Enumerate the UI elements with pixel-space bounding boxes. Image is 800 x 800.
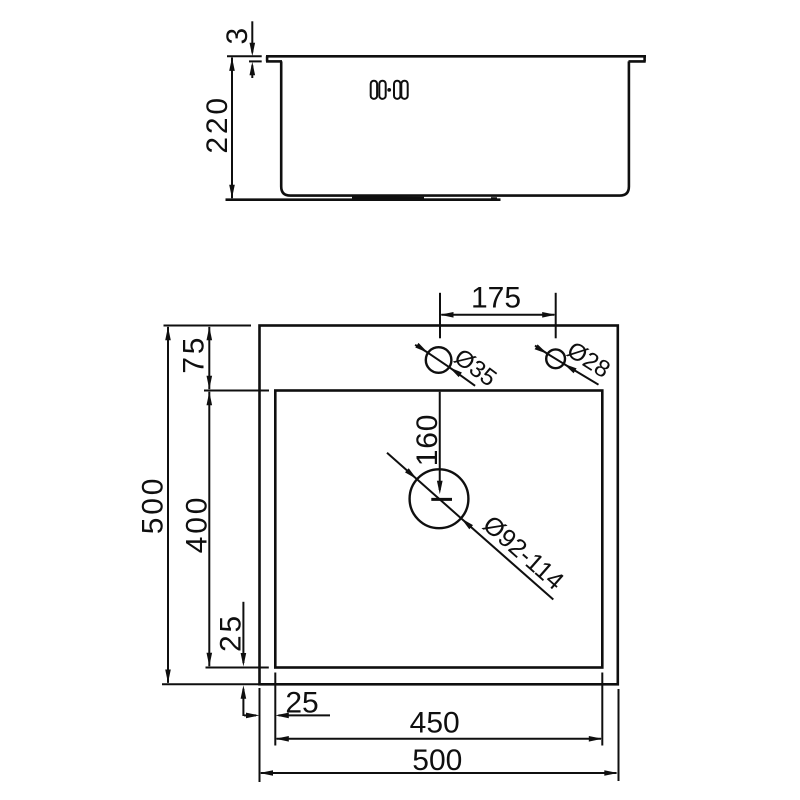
svg-text:500: 500 [412,744,462,777]
svg-text:25: 25 [285,686,318,719]
svg-text:25: 25 [215,613,248,652]
svg-text:450: 450 [410,706,460,739]
svg-text:400: 400 [181,495,214,553]
svg-text:75: 75 [177,335,210,374]
svg-text:160: 160 [411,414,444,466]
svg-text:500: 500 [137,476,170,534]
svg-text:220: 220 [201,95,234,153]
svg-text:175: 175 [471,282,521,315]
svg-text:3: 3 [221,25,254,45]
